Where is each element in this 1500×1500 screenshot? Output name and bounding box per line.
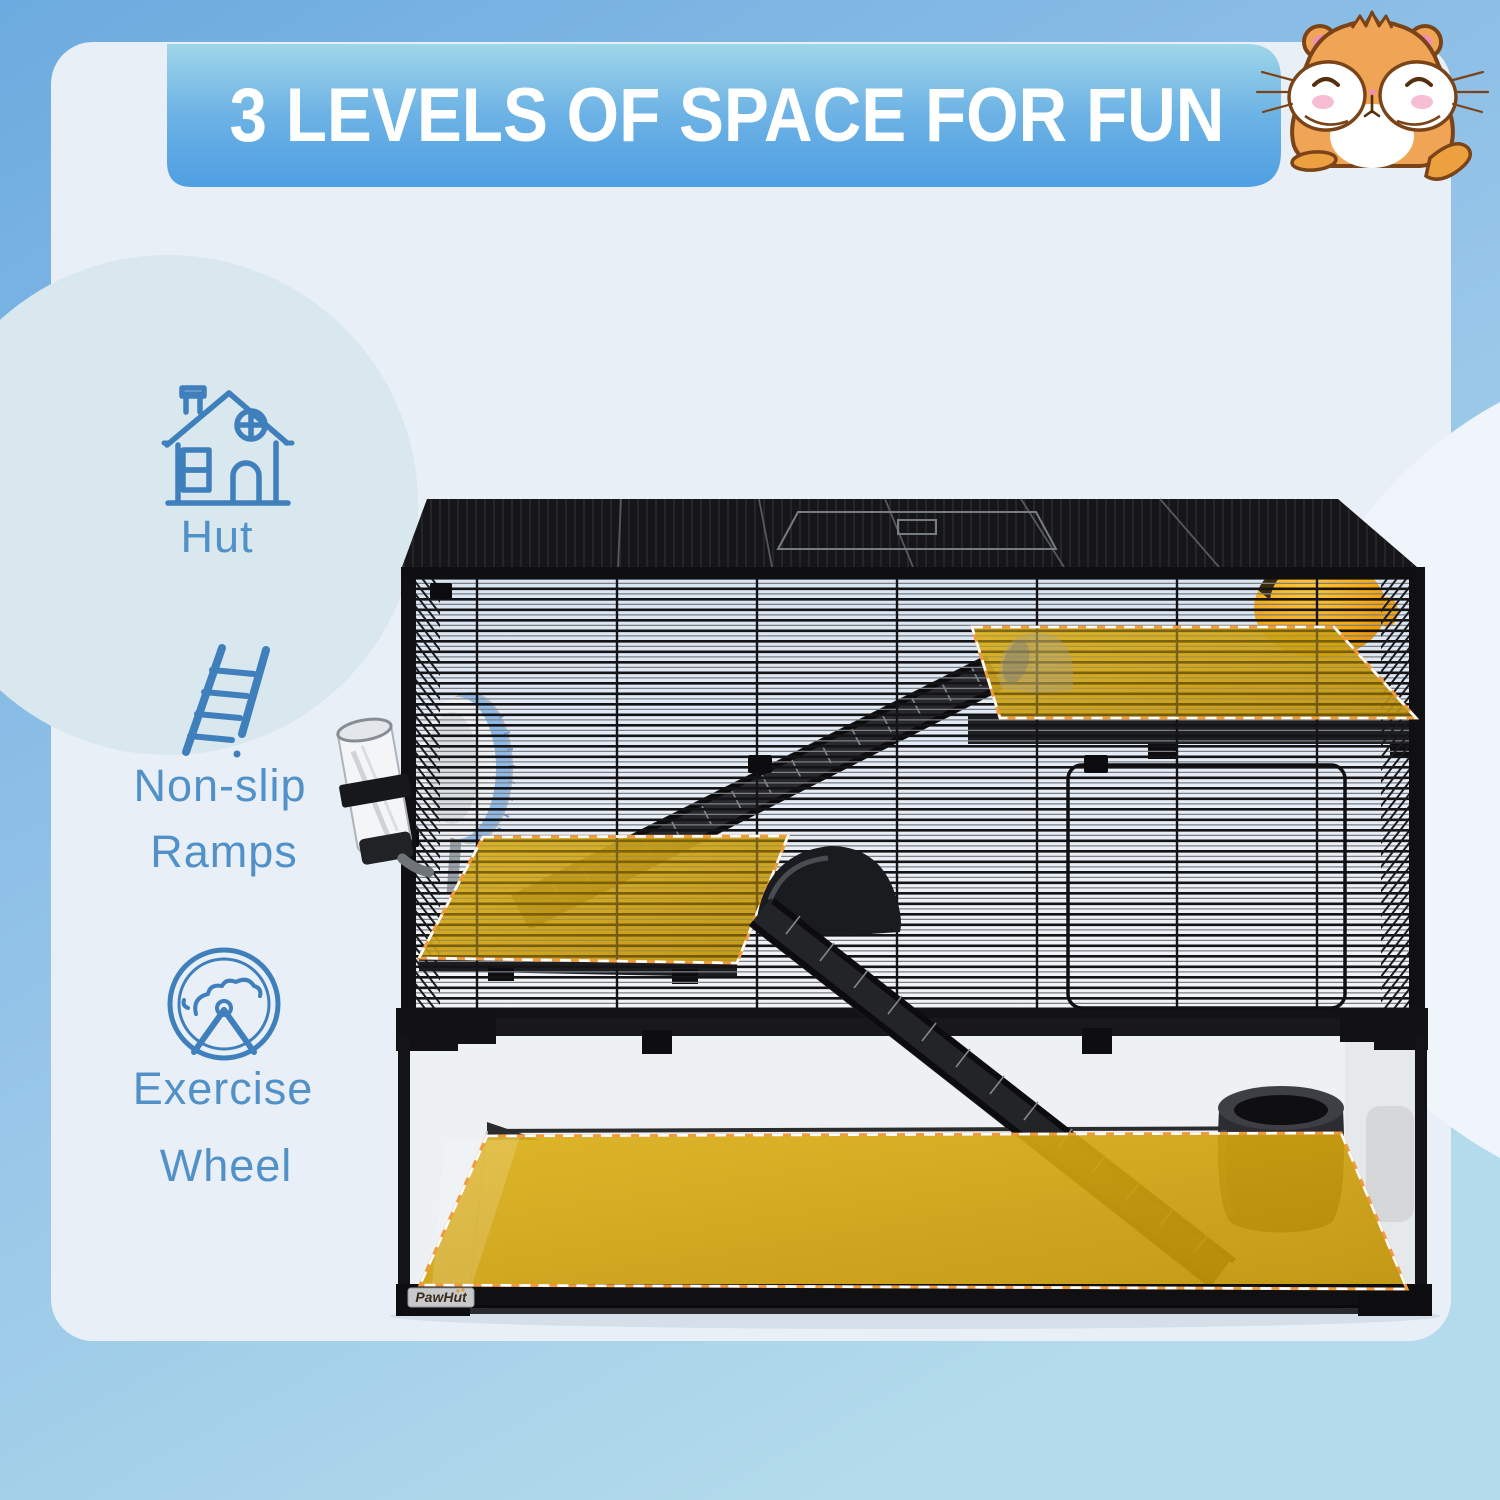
svg-text:Hut: Hut xyxy=(180,511,253,562)
svg-text:3 LEVELS OF SPACE FOR FUN: 3 LEVELS OF SPACE FOR FUN xyxy=(230,73,1225,158)
svg-text:PawHut: PawHut xyxy=(415,1289,468,1305)
svg-text:Exercise: Exercise xyxy=(133,1063,314,1114)
svg-text:Wheel: Wheel xyxy=(160,1140,293,1191)
svg-text:Non-slip: Non-slip xyxy=(133,760,306,811)
svg-text:Ramps: Ramps xyxy=(150,826,298,877)
